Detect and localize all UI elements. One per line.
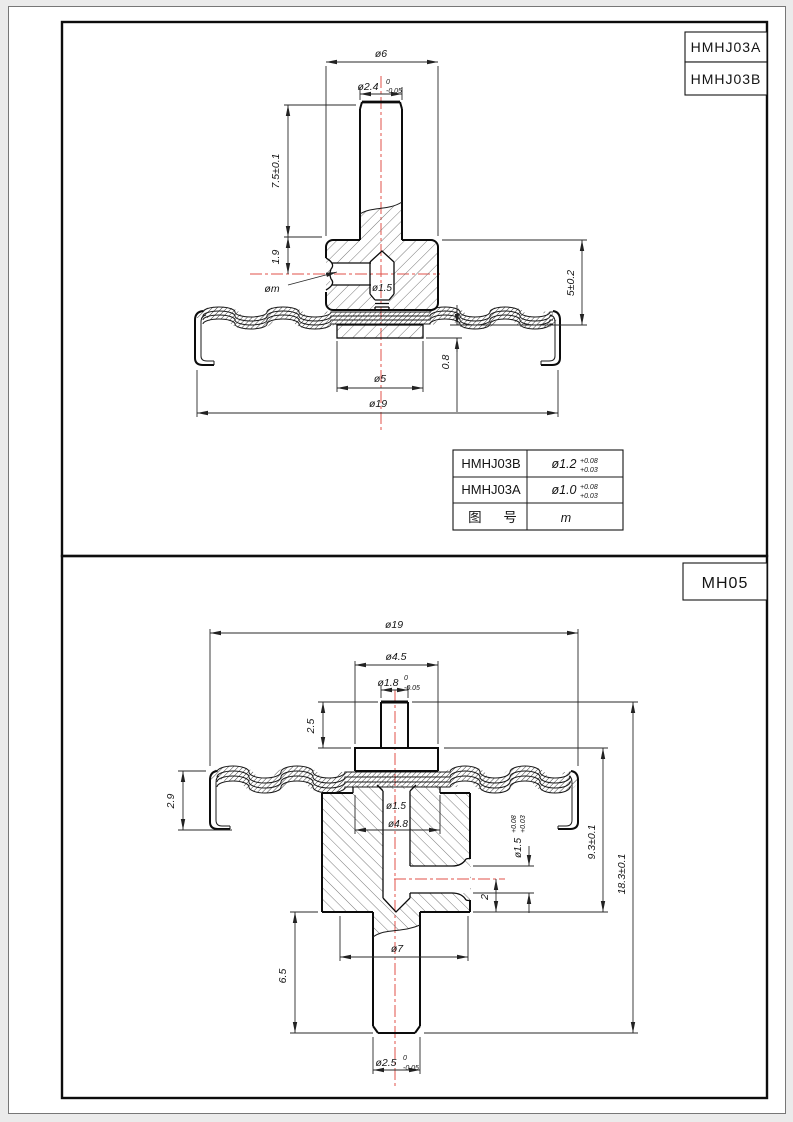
svg-text:0: 0 <box>403 1055 407 1062</box>
svg-text:ø4.5: ø4.5 <box>385 651 406 663</box>
title-block-bottom: MH05 <box>683 563 767 600</box>
svg-text:ø2.4: ø2.4 <box>357 81 378 93</box>
svg-text:7.5±0.1: 7.5±0.1 <box>270 154 282 189</box>
svg-text:HMHJ03B: HMHJ03B <box>461 456 520 471</box>
svg-text:ø7: ø7 <box>391 943 404 955</box>
title-block-top: HMHJ03A HMHJ03B <box>685 32 767 95</box>
svg-text:ø19: ø19 <box>369 398 387 410</box>
dim-dia1-5-top: ø1.5 <box>372 283 392 294</box>
svg-text:-0.05: -0.05 <box>386 88 402 95</box>
svg-text:9.3±0.1: 9.3±0.1 <box>586 825 598 860</box>
svg-text:HMHJ03A: HMHJ03A <box>461 482 521 497</box>
svg-text:ø4.8: ø4.8 <box>388 819 408 830</box>
cad-canvas: HMHJ03A HMHJ03B <box>0 0 793 1122</box>
svg-text:ø5: ø5 <box>374 373 386 385</box>
svg-text:2.5: 2.5 <box>305 719 317 735</box>
svg-text:18.3±0.1: 18.3±0.1 <box>616 854 628 895</box>
svg-text:1.9: 1.9 <box>270 250 282 265</box>
svg-text:0.8: 0.8 <box>440 355 452 370</box>
title-hmhj03b: HMHJ03B <box>691 71 762 87</box>
svg-text:+0.03: +0.03 <box>520 815 527 833</box>
svg-text:5±0.2: 5±0.2 <box>565 270 577 296</box>
svg-text:+0.03: +0.03 <box>580 493 598 500</box>
svg-text:ø1.5: ø1.5 <box>513 838 524 858</box>
svg-text:ø6: ø6 <box>375 48 387 60</box>
svg-text:+0.08: +0.08 <box>580 458 598 465</box>
dim-dia1-5-channel: ø1.5 <box>386 801 406 812</box>
svg-text:ø1.5: ø1.5 <box>372 283 392 294</box>
svg-text:+0.08: +0.08 <box>580 484 598 491</box>
title-hmhj03a: HMHJ03A <box>691 39 762 55</box>
spec-table: HMHJ03B ø1.2 +0.08 +0.03 HMHJ03A ø1.0 +0… <box>453 450 623 530</box>
drawing-page: HMHJ03A HMHJ03B <box>0 0 793 1122</box>
svg-text:ø1.2: ø1.2 <box>551 457 576 471</box>
svg-text:øm: øm <box>264 283 279 295</box>
svg-text:2: 2 <box>479 894 491 901</box>
title-mh05: MH05 <box>702 575 749 592</box>
svg-text:0: 0 <box>386 79 390 86</box>
svg-text:m: m <box>561 511 571 525</box>
svg-text:ø2.5: ø2.5 <box>375 1057 396 1069</box>
svg-text:0: 0 <box>404 675 408 682</box>
svg-text:2.9: 2.9 <box>165 794 177 810</box>
svg-text:-0.05: -0.05 <box>404 685 420 692</box>
svg-text:-0.05: -0.05 <box>403 1065 419 1072</box>
svg-text:+0.03: +0.03 <box>580 467 598 474</box>
svg-text:ø1.8: ø1.8 <box>377 677 398 689</box>
svg-text:图 号: 图 号 <box>468 510 526 525</box>
svg-text:+0.08: +0.08 <box>511 815 518 833</box>
svg-text:ø1.0: ø1.0 <box>551 483 576 497</box>
svg-text:ø19: ø19 <box>385 619 403 631</box>
svg-text:ø1.5: ø1.5 <box>386 801 406 812</box>
svg-text:6.5: 6.5 <box>277 969 289 984</box>
